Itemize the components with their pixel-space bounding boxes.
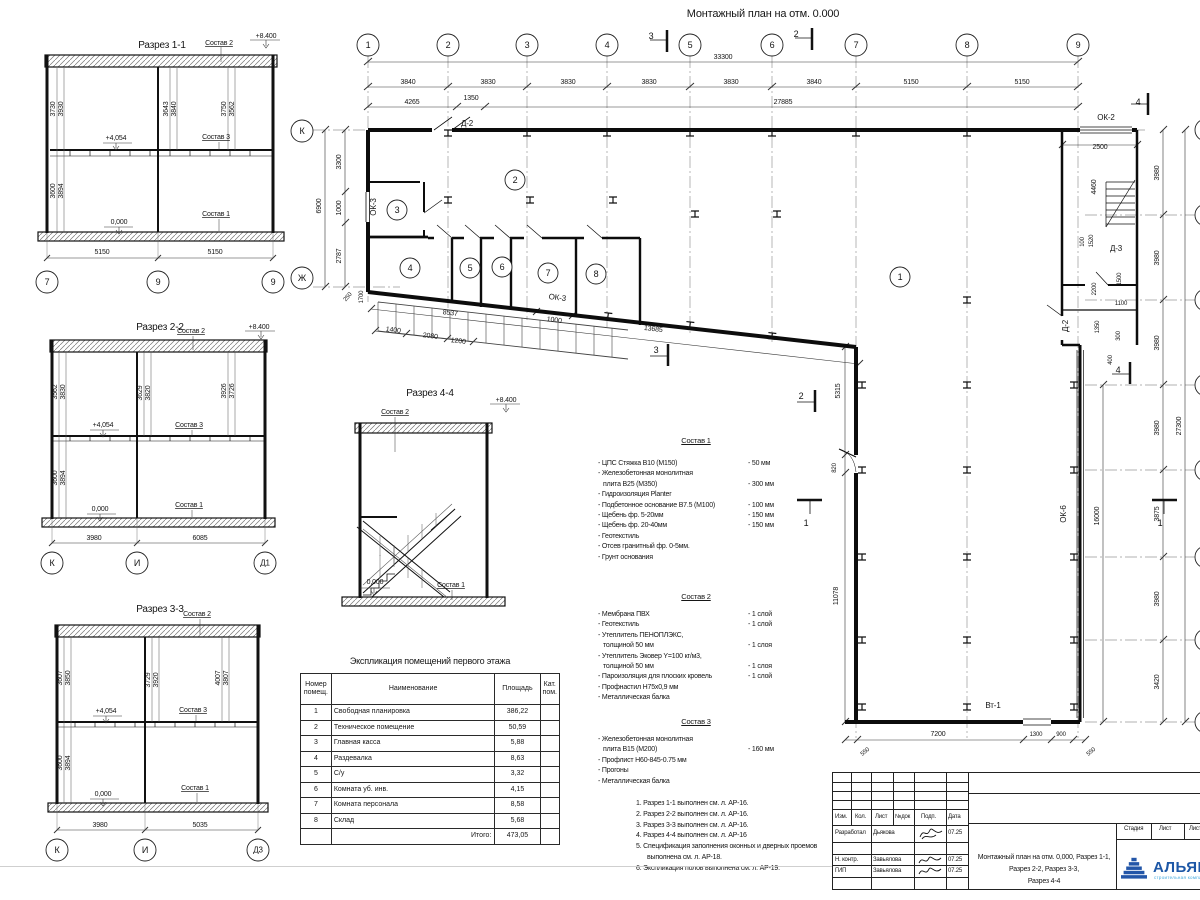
sostav-3-title: Состав 3 [598, 717, 794, 726]
tb-line [833, 825, 968, 826]
svg-label: 3830 [60, 384, 67, 399]
list-item: толщиной 50 мм- 1 слоя [598, 662, 794, 672]
svg-label: Состав 1 [175, 502, 203, 509]
grid-bubble [1195, 289, 1200, 311]
tb-doc-title-2: Разрез 2-2, Разрез 3-3, [970, 866, 1118, 873]
svg-label: 9 [271, 277, 276, 287]
col-header-area: Площадь [495, 674, 540, 705]
tb-col-data: Дата [948, 814, 961, 820]
svg-label: 1400 [385, 326, 401, 335]
svg-label: Состав 3 [179, 707, 207, 714]
logo-name: АЛЬЯНС [1153, 859, 1200, 876]
table-cell: 5,68 [495, 813, 540, 829]
grid-bubble [1195, 119, 1200, 141]
svg-label: 0,000 [95, 791, 112, 798]
explication-rows: 1Свободная планировка386,222Техническое … [301, 705, 560, 845]
table-cell: 7 [301, 798, 332, 814]
svg-label: 3807 [223, 670, 230, 685]
tb-line [968, 793, 1200, 794]
table-cell [540, 829, 559, 845]
list-item: 5. Спецификация заполнения оконных и две… [636, 842, 821, 864]
svg-label: 5150 [1015, 79, 1030, 86]
table-row: 4Раздевалка8,63 [301, 751, 560, 767]
tb-line [833, 791, 968, 792]
section-3-3-drawing: Разрез 3-3Состав 23607385037293920400738… [25, 600, 295, 862]
title-block: Изм. Кол. Лист №док Подп. Дата Разработа… [832, 772, 1200, 890]
list-item: 1. Разрез 1-1 выполнен см. л. АР-16. [636, 799, 821, 810]
table-cell: 4 [301, 751, 332, 767]
svg-label: 2787 [336, 248, 343, 263]
svg-label: 3 [654, 345, 659, 355]
svg-label: 3300 [336, 154, 343, 169]
grid-bubble [1195, 374, 1200, 396]
svg-label: +4,054 [96, 708, 117, 715]
section-1-1-drawing: Разрез 1-1Состав 2+8.4003730393036433840… [25, 30, 295, 295]
svg-label: 3830 [481, 79, 496, 86]
list-item: плита В15 (М200)- 160 мм [598, 745, 794, 755]
section-2-2-drawing: Разрез 2-2Состав 2+8.4003562383036293820… [25, 318, 295, 580]
svg-label: Состав 2 [177, 328, 205, 335]
svg-label: 3820 [145, 385, 152, 400]
table-row: 3Главная касса5,88 [301, 736, 560, 752]
svg-label: 1500 [1117, 272, 1123, 286]
svg-label: Состав 3 [202, 134, 230, 141]
svg-label: 3980 [1154, 335, 1161, 350]
svg-label: Состав 1 [181, 785, 209, 792]
sostav-3-block: Состав 3 - Железобетонная монолитнаяплит… [598, 717, 794, 787]
tb-line [1184, 823, 1185, 839]
sheet-frame-line [0, 866, 832, 867]
svg-label: Состав 2 [183, 611, 211, 618]
table-cell [301, 829, 332, 845]
svg-label: 3894 [58, 183, 65, 198]
svg-label: 3420 [1154, 674, 1161, 689]
list-item: - Железобетонная монолитная [598, 469, 794, 479]
svg-label: 16000 [1094, 506, 1101, 525]
svg-label: 1300 [1030, 732, 1044, 738]
svg-label: 8 [594, 269, 599, 279]
table-cell: 1 [301, 705, 332, 721]
svg-label: +4,054 [93, 422, 114, 429]
table-cell: 5,88 [495, 736, 540, 752]
table-row: 1Свободная планировка386,22 [301, 705, 560, 721]
svg-label: 4007 [215, 670, 222, 685]
table-cell: 4,15 [495, 782, 540, 798]
table-cell: Склад [331, 813, 494, 829]
svg-label: 3926 [221, 383, 228, 398]
svg-label: Д1 [260, 559, 270, 568]
tb-name-1: Дьякова [873, 830, 895, 836]
col-header-cat: Кат. пом. [540, 674, 559, 705]
svg-label: 3980 [1154, 250, 1161, 265]
svg-label: Разрез 1-1 [138, 40, 186, 51]
tb-col-list: Лист [875, 814, 887, 820]
grid-bubble [1195, 629, 1200, 651]
table-cell: Техническое помещение [331, 720, 494, 736]
tb-line [833, 800, 968, 801]
table-row: 5С/у3,32 [301, 767, 560, 783]
notes-list: 1. Разрез 1-1 выполнен см. л. АР-16.2. Р… [636, 799, 821, 875]
table-cell: 8,58 [495, 798, 540, 814]
svg-label: 820 [832, 462, 838, 472]
svg-label: 2 [446, 40, 451, 50]
table-cell: 3,32 [495, 767, 540, 783]
svg-label: Состав 1 [202, 211, 230, 218]
sostav-2-items: - Мембрана ПВХ- 1 слой- Геотекстиль- 1 с… [598, 610, 794, 704]
svg-label: 5 [688, 40, 693, 50]
svg-label: 7 [45, 277, 50, 287]
svg-label: ОК-6 [1059, 505, 1068, 523]
svg-label: 3980 [1154, 591, 1161, 606]
list-item: - Геотекстиль- 1 слой [598, 620, 794, 630]
explication-table: Номер помещ. Наименование Площадь Кат. п… [300, 673, 560, 845]
svg-label: 2 [513, 175, 518, 185]
svg-label: 7 [854, 40, 859, 50]
table-cell: С/у [331, 767, 494, 783]
svg-label: 5150 [95, 249, 110, 256]
sostav-2-title: Состав 2 [598, 592, 794, 601]
svg-label: 1000 [546, 316, 562, 325]
svg-label: 550 [860, 746, 872, 757]
tb-name-2: Завьялова [873, 857, 901, 863]
grid-bubble [1195, 546, 1200, 568]
svg-label: 3850 [65, 670, 72, 685]
section-2-2-labels: Разрез 2-2Состав 2+8.4003562383036293820… [41, 322, 276, 574]
svg-label: И [142, 845, 148, 855]
svg-label: 1350 [1095, 320, 1101, 334]
svg-label: Д-3 [1110, 244, 1123, 253]
svg-label: 3980 [87, 535, 102, 542]
svg-label: 11078 [833, 587, 840, 605]
col-header-number: Номер помещ. [301, 674, 332, 705]
list-item: плита В25 (М350)- 300 мм [598, 480, 794, 490]
table-cell: 386,22 [495, 705, 540, 721]
table-row: 7Комната персонала8,58 [301, 798, 560, 814]
table-cell [540, 782, 559, 798]
tb-role-2: Н. контр. [835, 857, 858, 863]
tb-role-3: ГИП [835, 868, 846, 874]
tb-list-col: Лист [1159, 826, 1171, 832]
tb-stage-col: Стадия [1124, 826, 1143, 832]
section-3-3-labels: Разрез 3-3Состав 23607385037293920400738… [46, 604, 269, 861]
svg-label: 100 [1080, 236, 1086, 246]
list-item: - Профнастил Н75х0,9 мм [598, 683, 794, 693]
svg-label: 900 [1056, 732, 1066, 738]
plan-entry-steps [378, 302, 628, 359]
grid-bubble [1195, 459, 1200, 481]
svg-label: 6 [770, 40, 775, 50]
tb-role-1: Разработал [835, 830, 866, 836]
svg-label: 3 [649, 31, 654, 41]
tb-col-izm: Изм. [835, 814, 847, 820]
list-item: - ЦПС Стяжка В10 (М150)- 50 мм [598, 459, 794, 469]
table-cell [540, 705, 559, 721]
table-cell [540, 720, 559, 736]
svg-label: 3894 [65, 755, 72, 770]
svg-label: 1000 [336, 200, 343, 215]
svg-label: 4265 [405, 99, 420, 106]
svg-label: 1 [804, 518, 809, 528]
plan-title: Монтажный план на отм. 0.000 [640, 8, 886, 20]
table-cell: Комната уб. инв. [331, 782, 494, 798]
tb-col-podp: Подп. [921, 814, 936, 820]
svg-label: 6085 [193, 535, 208, 542]
svg-label: 3830 [724, 79, 739, 86]
svg-label: 250 [343, 291, 354, 303]
tb-line [968, 823, 1200, 824]
svg-label: 0,000 [92, 506, 109, 513]
svg-label: 3840 [401, 79, 416, 86]
svg-label: 3629 [137, 385, 144, 400]
svg-label: +4,054 [106, 135, 127, 142]
svg-label: 4 [408, 263, 413, 273]
table-cell: Комната персонала [331, 798, 494, 814]
svg-label: 8537 [442, 309, 458, 318]
svg-label: 4 [1136, 97, 1141, 107]
svg-label: Разрез 3-3 [136, 604, 184, 615]
svg-label: 3920 [153, 672, 160, 687]
tb-line [893, 773, 894, 825]
list-item: - Щебень фр. 20-40мм- 150 мм [598, 521, 794, 531]
table-cell: Итого: [331, 829, 494, 845]
list-item: - Подбетонное основание В7.5 (М100)- 100… [598, 501, 794, 511]
tb-date-1: 07.25 [948, 830, 962, 836]
svg-label: 7200 [931, 731, 946, 738]
svg-label: 3 [395, 205, 400, 215]
sostav-1-block: Состав 1 - ЦПС Стяжка В10 (М150)- 50 мм-… [598, 436, 794, 563]
svg-label: 5150 [208, 249, 223, 256]
list-item: - Гидроизоляция Planter [598, 490, 794, 500]
list-item: - Металлическая балка [598, 777, 794, 787]
list-item: - Профлист Н60-845-0.75 мм [598, 756, 794, 766]
svg-label: Д-2 [1061, 319, 1070, 332]
svg-label: 2500 [1093, 144, 1108, 151]
svg-label: 9 [156, 277, 161, 287]
explication-title: Экспликация помещений первого этажа [300, 656, 560, 666]
svg-label: +8.400 [256, 33, 277, 40]
table-cell: 8,63 [495, 751, 540, 767]
table-cell: Раздевалка [331, 751, 494, 767]
tb-line [968, 773, 969, 889]
svg-label: 3 [525, 40, 530, 50]
tb-line [833, 865, 968, 866]
svg-label: 1 [366, 40, 371, 50]
svg-label: 1700 [359, 290, 365, 304]
table-cell: 5 [301, 767, 332, 783]
svg-label: 400 [1108, 354, 1114, 364]
table-cell: 2 [301, 720, 332, 736]
svg-label: 3643 [163, 101, 170, 116]
tb-line [833, 877, 968, 878]
svg-label: 27885 [774, 99, 793, 106]
table-cell: 8 [301, 813, 332, 829]
sostav-2-block: Состав 2 - Мембрана ПВХ- 1 слой- Геотекс… [598, 592, 794, 704]
svg-label: 0,000 [111, 219, 128, 226]
table-cell [540, 813, 559, 829]
svg-label: 3980 [93, 822, 108, 829]
table-cell: 50,59 [495, 720, 540, 736]
svg-label: 3562 [229, 101, 236, 116]
list-item: 2. Разрез 2-2 выполнен см. л. АР-16. [636, 810, 821, 821]
svg-label: 3980 [1154, 165, 1161, 180]
table-row: 8Склад5,68 [301, 813, 560, 829]
list-item: - Отсев гранитный фр. 0-5мм. [598, 542, 794, 552]
svg-label: 33300 [714, 54, 733, 61]
tb-line [833, 809, 968, 810]
svg-label: 2080 [422, 332, 438, 341]
list-item: - Щебень фр. 5-20мм- 150 мм [598, 511, 794, 521]
list-item: - Утеплитель Эковер Y=100 кг/м3, [598, 652, 794, 662]
svg-label: И [134, 558, 140, 568]
tb-line [833, 842, 968, 843]
svg-label: 3729 [145, 672, 152, 687]
svg-label: 9 [1076, 40, 1081, 50]
svg-label: Состав 2 [205, 40, 233, 47]
svg-label: 3562 [52, 384, 59, 399]
tb-doc-title-1: Монтажный план на отм. 0,000, Разрез 1-1… [970, 854, 1118, 861]
svg-label: Д-2 [461, 119, 474, 128]
tb-line [1116, 839, 1200, 840]
svg-label: Д3 [253, 846, 263, 855]
svg-label: 5315 [835, 383, 842, 398]
section-2-2-structure [42, 331, 275, 546]
section-3-3-structure [48, 619, 268, 833]
sostav-1-items: - ЦПС Стяжка В10 (М150)- 50 мм- Железобе… [598, 459, 794, 563]
svg-label: 2 [799, 391, 804, 401]
list-item: 3. Разрез 3-3 выполнен см. л. АР-16. [636, 821, 821, 832]
svg-label: 1100 [1115, 301, 1128, 307]
table-cell [540, 798, 559, 814]
svg-label: 300 [1116, 330, 1122, 340]
svg-label: 27300 [1176, 416, 1183, 435]
svg-label: 3600 [52, 470, 59, 485]
svg-label: 4460 [1091, 179, 1098, 194]
col-header-name: Наименование [331, 674, 494, 705]
table-cell: 6 [301, 782, 332, 798]
svg-label: 1200 [450, 337, 466, 346]
svg-label: 6900 [316, 198, 323, 213]
list-item: - Мембрана ПВХ- 1 слой [598, 610, 794, 620]
svg-label: 3840 [807, 79, 822, 86]
svg-label: 2200 [1092, 282, 1098, 296]
svg-label: 4 [605, 40, 610, 50]
list-item: - Геотекстиль [598, 532, 794, 542]
svg-label: 1520 [1089, 234, 1095, 248]
svg-label: 1350 [464, 95, 479, 102]
table-cell: Свободная планировка [331, 705, 494, 721]
svg-label: 3840 [171, 101, 178, 116]
tb-line [851, 773, 852, 825]
svg-label: 3830 [561, 79, 576, 86]
svg-label: 3600 [50, 183, 57, 198]
tb-line [833, 782, 968, 783]
table-cell [540, 751, 559, 767]
table-cell [540, 736, 559, 752]
list-item: - Железобетонная монолитная [598, 735, 794, 745]
sostav-1-title: Состав 1 [598, 436, 794, 445]
svg-label: ОК-3 [548, 292, 567, 303]
logo-subtitle: строительная компания [1154, 875, 1200, 880]
drawing-sheet: Монтажный план на отм. 0.000 Разрез 1-1С… [0, 0, 1200, 900]
svg-label: 1 [898, 272, 903, 282]
svg-label: 2 [794, 29, 799, 39]
table-row: 2Техническое помещение50,59 [301, 720, 560, 736]
svg-label: ОК-3 [369, 198, 378, 216]
logo-pyramid-icon [1121, 856, 1147, 883]
svg-label: 1 [1158, 518, 1163, 528]
tb-line [1151, 823, 1152, 839]
svg-label: 3607 [57, 670, 64, 685]
svg-label: 3894 [60, 470, 67, 485]
svg-label: 550 [1086, 746, 1098, 757]
list-item: - Грунт основания [598, 553, 794, 563]
svg-label: 3830 [642, 79, 657, 86]
section-1-1-structure [38, 40, 284, 261]
tb-name-3: Завьялова [873, 868, 901, 874]
table-cell [540, 767, 559, 783]
svg-label: 5150 [904, 79, 919, 86]
room-explication: Экспликация помещений первого этажа Номе… [300, 656, 560, 845]
tb-listov-col: Листов [1189, 826, 1200, 832]
svg-label: ОК-2 [1097, 113, 1115, 122]
tb-col-ndok: №док [895, 814, 910, 820]
tb-line [833, 854, 968, 855]
svg-label: 7 [546, 268, 551, 278]
svg-label: 4 [1116, 365, 1121, 375]
list-item: - Пароизоляция для плоских кровель- 1 сл… [598, 672, 794, 682]
svg-label: +8.400 [249, 324, 270, 331]
svg-label: Вт-1 [985, 701, 1001, 710]
signatures [916, 825, 946, 881]
list-item: 4. Разрез 4-4 выполнен см. л. АР-16 [636, 831, 821, 842]
tb-doc-title-3: Разрез 4-4 [970, 878, 1118, 885]
table-row: 6Комната уб. инв.4,15 [301, 782, 560, 798]
svg-label: 3750 [221, 101, 228, 116]
sostav-3-items: - Железобетонная монолитнаяплита В15 (М2… [598, 735, 794, 787]
list-item: толщиной 50 мм- 1 слоя [598, 641, 794, 651]
table-cell: 3 [301, 736, 332, 752]
svg-label: 3600 [57, 755, 64, 770]
svg-label: 5 [468, 263, 473, 273]
svg-label: 8 [965, 40, 970, 50]
table-row: Итого:473,05 [301, 829, 560, 845]
list-item: - Металлическая балка [598, 693, 794, 703]
svg-label: 3726 [229, 383, 236, 398]
svg-label: 5035 [193, 822, 208, 829]
section-1-1-labels: Разрез 1-1Состав 2+8.4003730393036433840… [36, 33, 284, 293]
table-cell: 473,05 [495, 829, 540, 845]
svg-label: 6 [500, 262, 505, 272]
table-cell: Главная касса [331, 736, 494, 752]
tb-date-3: 07.25 [948, 868, 962, 874]
svg-label: 13685 [643, 325, 663, 334]
grid-bubble [1195, 711, 1200, 733]
svg-label: Состав 3 [175, 422, 203, 429]
grid-bubble [1195, 204, 1200, 226]
svg-label: Ж [298, 273, 307, 283]
tb-date-2: 07.25 [948, 857, 962, 863]
svg-label: 3730 [50, 101, 57, 116]
svg-label: 3930 [58, 101, 65, 116]
list-item: - Утеплитель ПЕНОПЛЭКС, [598, 631, 794, 641]
svg-label: 3980 [1154, 420, 1161, 435]
tb-col-kol: Кол. [855, 814, 866, 820]
list-item: - Прогоны [598, 766, 794, 776]
